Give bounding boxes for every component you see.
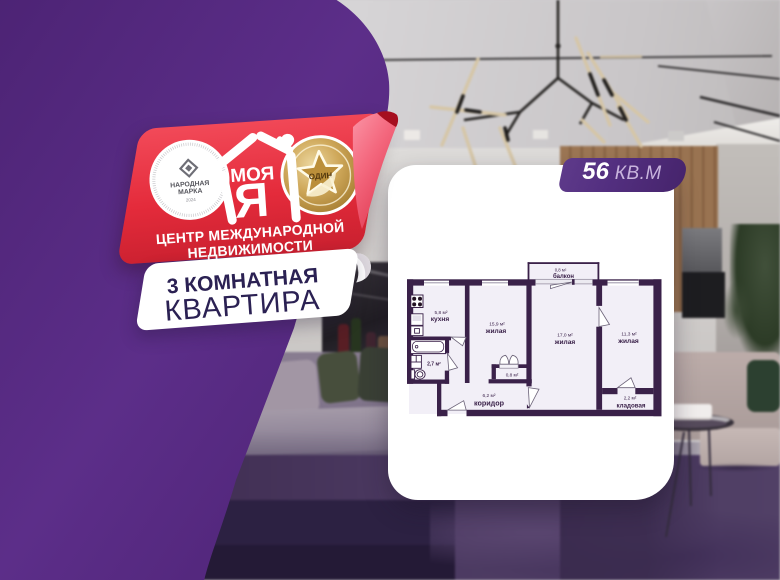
svg-text:кухня: кухня [431,316,450,323]
svg-text:2,7 м²: 2,7 м² [427,361,441,367]
svg-text:жилая: жилая [485,328,507,335]
svg-text:жилая: жилая [617,338,639,345]
svg-text:балкон: балкон [553,273,574,280]
svg-text:коридор: коридор [474,398,505,407]
svg-text:17,0 м²: 17,0 м² [557,333,573,339]
svg-text:11,3 м²: 11,3 м² [621,332,637,338]
svg-text:15,9 м²: 15,9 м² [489,322,505,328]
svg-text:кладовая: кладовая [616,403,645,410]
svg-text:2,2 м²: 2,2 м² [624,396,637,401]
svg-text:Я: Я [233,174,271,229]
svg-text:2024: 2024 [186,197,197,203]
svg-text:0,8 м²: 0,8 м² [555,267,567,272]
svg-text:0,8 м²: 0,8 м² [506,373,519,378]
svg-text:жилая: жилая [554,339,576,346]
